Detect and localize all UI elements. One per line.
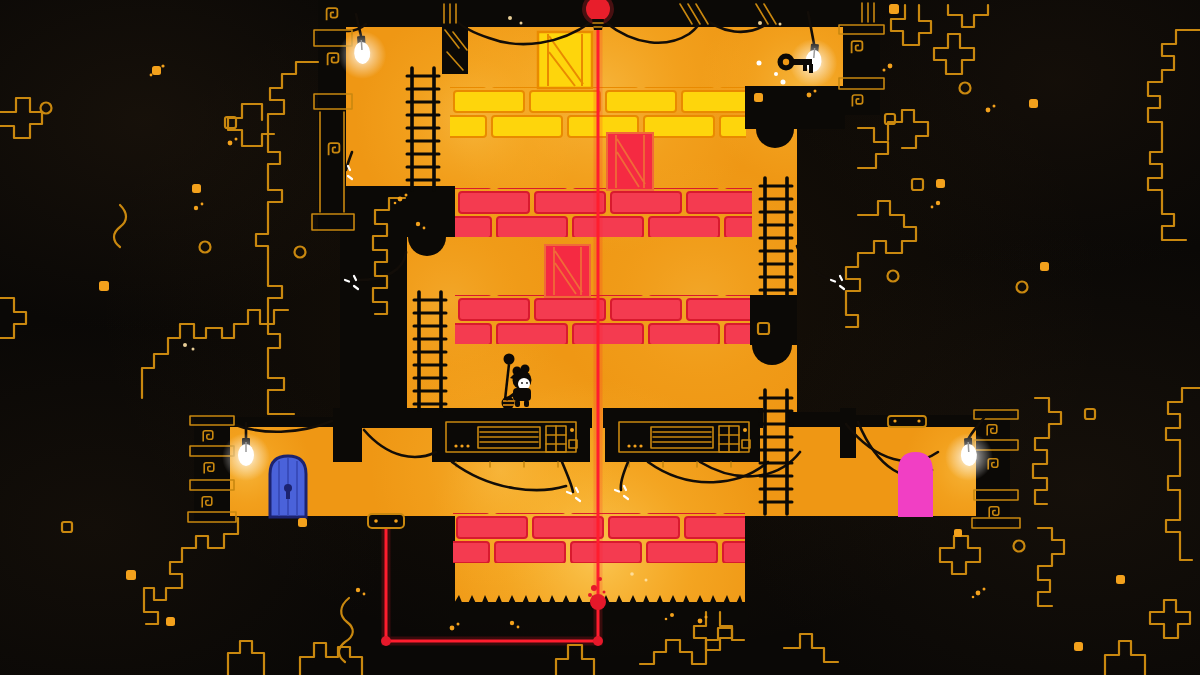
blue-door[interactable] (270, 456, 306, 517)
balloon-icon (504, 354, 515, 365)
wire-socket-plate (368, 514, 404, 528)
crate-red-upper[interactable] (607, 133, 653, 190)
pink-door[interactable] (898, 452, 933, 517)
crate-yellow[interactable] (538, 32, 592, 88)
wire-node (593, 636, 603, 646)
game-viewport[interactable] (0, 0, 1200, 675)
spark-icon (831, 276, 844, 289)
brick-row-red-2 (455, 295, 752, 344)
wire-node (381, 636, 391, 646)
crate-red-lower[interactable] (545, 245, 590, 297)
carved-column-top-right (839, 25, 884, 115)
ceiling-bracket-plate (888, 416, 926, 427)
level-canvas (0, 0, 1200, 675)
brick-row-red-1 (455, 188, 752, 237)
wire-node-large (590, 594, 606, 610)
